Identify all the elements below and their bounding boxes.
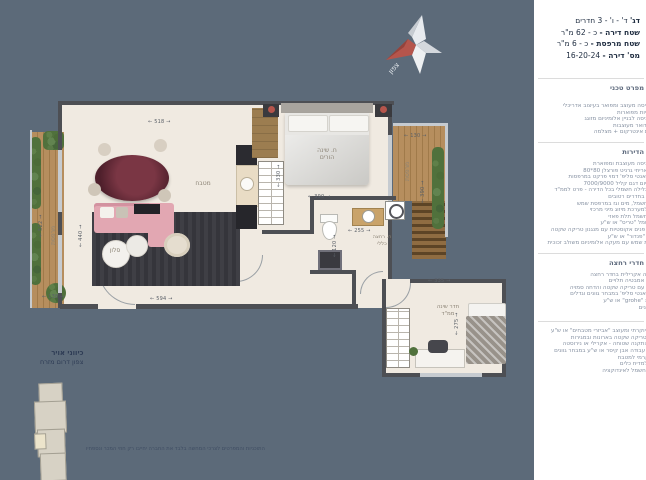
apartment-area-label: שטח דירה - <box>599 28 640 37</box>
balcony-rail <box>30 130 32 308</box>
spec-section-kitchen: מטבח יוקרתי ומעוצב "אביזרי מטבחים" או ש"… <box>534 328 646 374</box>
compass-rose-icon: צפון <box>383 10 445 80</box>
spec-section-apartments: דלת כניסה מעוצבת ומפוארת ריצוף אריחי גרנ… <box>534 161 646 247</box>
spec-section-building: לובי כניסה מעוצב ומפואר בעיצוב אדריכלי 2… <box>534 103 646 136</box>
sink-icon <box>362 210 375 223</box>
balcony-area-label: שטח מרפסת - <box>591 39 640 48</box>
dim-bathroom-width: 255 <box>348 228 371 234</box>
kitchen-sink <box>240 177 254 191</box>
dim-bedroom-width: 390 <box>308 194 331 200</box>
divider <box>538 321 644 322</box>
bedside-lamp <box>380 106 387 113</box>
apartment-number-line: מס' דירה - 16-20-24 <box>557 50 640 62</box>
shower <box>318 250 342 270</box>
plant-icon <box>409 347 418 356</box>
wall <box>310 270 352 274</box>
dining-chair <box>98 143 111 156</box>
spec-item: סוללות "grohe" או ש"ע <box>534 298 646 305</box>
apartment-number-label: מס' דירה - <box>603 51 640 60</box>
spec-item: מערכת אינטרקום + מצלמה <box>534 129 646 136</box>
spec-item: ריצוף 'אנטי סליפ' דמוי פרקט במרפסות <box>534 174 646 181</box>
apartment-model-label: דג' <box>630 16 640 25</box>
sofa-pillow <box>116 207 128 218</box>
spec-item: מטבח יוקרתי ומעוצב "אביזרי מטבחים" או ש"… <box>534 328 646 335</box>
mamad-label: חדר שינה ממ"ד <box>426 304 470 318</box>
apartment-header: דג' ד' - ו' - 3 חדרים שטח דירה - כ - 62 … <box>557 15 640 61</box>
window <box>58 150 62 212</box>
floor-plan: סלון מטבח ח. שינה הורים ח. רחצה <box>30 95 510 385</box>
left-balcony-label: מרפסת <box>50 226 57 245</box>
spec-item: מרפסת שמש עם מעקה אלומיניום משולב זכוכית <box>534 240 646 247</box>
brochure-page: צפון <box>0 0 646 480</box>
compass-north-label: צפון <box>387 61 401 76</box>
spec-item: חלונות בחדרים רטובים <box>534 194 646 201</box>
dim-bedroom-height: 330 <box>276 164 282 187</box>
balcony-area-value: כ - 6 מ"ר <box>557 39 588 48</box>
spec-item: תריסי גלילה חשמלי בכל הדירה - פרט לממ"ד <box>534 187 646 194</box>
living-room-label: סלון <box>102 247 128 254</box>
pillow <box>329 115 369 132</box>
master-bedroom-label-line2: הורים <box>297 154 357 161</box>
spec-item: כיור בהתקנה שטוחה - אקרילי או נירוסטה <box>534 341 646 348</box>
apartment-area-line: שטח דירה - כ - 62 מ"ר <box>557 27 640 39</box>
balcony-area-line: שטח מרפסת - כ - 6 מ"ר <box>557 38 640 50</box>
wall <box>262 230 314 234</box>
sofa-pillow <box>100 207 114 218</box>
bed-headboard <box>281 103 373 113</box>
dim-living-height: 440 <box>78 224 84 247</box>
technical-spec: מפרט טכני לובי כניסה מעוצב ומפואר בעיצוב… <box>534 72 646 374</box>
spec-item: דלתות פנים אקוסטיות עם מנגנון טריקה שקטה <box>534 227 646 234</box>
kitchen-label: מטבח <box>188 180 218 187</box>
spec-item: לובי כניסה מעוצב ומפואר בעיצוב אדריכלי <box>534 103 646 110</box>
right-balcony-label: מרפסת <box>404 162 411 181</box>
desk-chair <box>428 340 448 353</box>
wall <box>310 196 314 234</box>
window <box>58 235 62 293</box>
dim-mamad-width: 335 <box>428 278 451 284</box>
plant-icon <box>432 147 444 229</box>
dining-chair <box>154 139 167 152</box>
single-bed <box>466 316 506 364</box>
dim-bathroom-height: 120 <box>332 234 338 257</box>
divider <box>538 78 644 79</box>
master-bedroom-label-line1: ח. שינה <box>297 147 357 154</box>
dim-balcony-left-width: 138 <box>42 294 65 300</box>
key-plan-block <box>40 453 67 480</box>
spec-item: מקלחונים <box>534 305 646 312</box>
mamad-label-line2: ממ"ד <box>426 311 470 318</box>
spec-section-bathrooms: אמבטיה אקרילית בחדר רחצה ארונות אמבטיה ת… <box>534 272 646 312</box>
spec-section-apartments-title: הדירות <box>534 148 646 157</box>
apartment-area-value: כ - 62 מ"ר <box>561 28 597 37</box>
pillow <box>288 115 328 132</box>
dim-balcony-left-height: 522 <box>38 214 44 237</box>
fridge <box>236 205 257 229</box>
apartment-number-value: 16-20-24 <box>566 51 600 60</box>
apartment-model-value: ד' - ו' - 3 חדרים <box>575 16 627 25</box>
spec-title: מפרט טכני <box>534 84 646 93</box>
spec-item: הכנה למערכת מיזוג מיני מרכזי <box>534 207 646 214</box>
wall <box>262 304 358 309</box>
window <box>420 373 482 377</box>
spec-item: משטח עבודה אבן קיסר או ש"ע במבחר גוונים <box>534 348 646 355</box>
air-directions-value: צפון דרום מזרח <box>40 358 83 367</box>
spec-item: דלת כניסה מעוצבת ומפוארת <box>534 161 646 168</box>
divider <box>538 253 644 254</box>
wall <box>60 304 264 309</box>
bathroom-label: ח. רחצה כללי <box>364 234 400 248</box>
wall <box>352 270 356 308</box>
dim-living-bottom: 594 <box>150 296 173 302</box>
air-directions-title: כיווני אויר <box>40 349 83 358</box>
spec-section-bathrooms-title: חדרי רחצה <box>534 259 646 268</box>
spec-item: ארונות אמבטיה תלויים <box>534 278 646 285</box>
balcony-rail <box>393 123 448 126</box>
wardrobe <box>386 308 410 368</box>
balcony-rail <box>445 125 448 237</box>
spec-panel: דג' ד' - ו' - 3 חדרים שטח דירה - כ - 62 … <box>534 0 646 480</box>
dining-chair <box>88 183 101 196</box>
dining-chair <box>158 189 171 202</box>
spec-item: הכנה למדיח כלים <box>534 361 646 368</box>
bathroom-label-line2: כללי <box>364 241 400 248</box>
dim-mamad-height: 275 <box>454 312 460 335</box>
bathroom-label-line1: ח. רחצה <box>364 234 400 241</box>
master-bedroom-label: ח. שינה הורים <box>297 147 357 161</box>
mamad-label-line1: חדר שינה <box>426 304 470 311</box>
dim-balcony-right-width: 130 <box>404 133 427 139</box>
apartment-model-line: דג' ד' - ו' - 3 חדרים <box>557 15 640 27</box>
spec-item: נקודת חשמל לאינדוקציה <box>534 368 646 375</box>
pouf <box>126 235 148 257</box>
balcony-window <box>388 135 392 205</box>
spec-item: דלת כניסה לבניין אלומיניום מזוגג <box>534 116 646 123</box>
spec-item: דוד חשמל "טריס" או ש"ע <box>534 220 646 227</box>
dim-balcony-right-height: 390 <box>420 180 426 203</box>
plant-icon <box>46 283 66 303</box>
divider <box>538 142 644 143</box>
bedside-lamp <box>268 106 275 113</box>
air-directions: כיווני אויר צפון דרום מזרח <box>40 349 83 367</box>
washing-machine-drum <box>389 204 404 219</box>
key-plan-highlight-unit <box>34 433 47 449</box>
dim-living-width: 518 <box>148 119 171 125</box>
disclaimer-text: התוכניות והמפרטים לצרכי המחשה בלבד את הח… <box>86 446 265 452</box>
key-plan <box>32 382 71 480</box>
tv-console <box>134 204 160 214</box>
armchair <box>164 233 190 257</box>
